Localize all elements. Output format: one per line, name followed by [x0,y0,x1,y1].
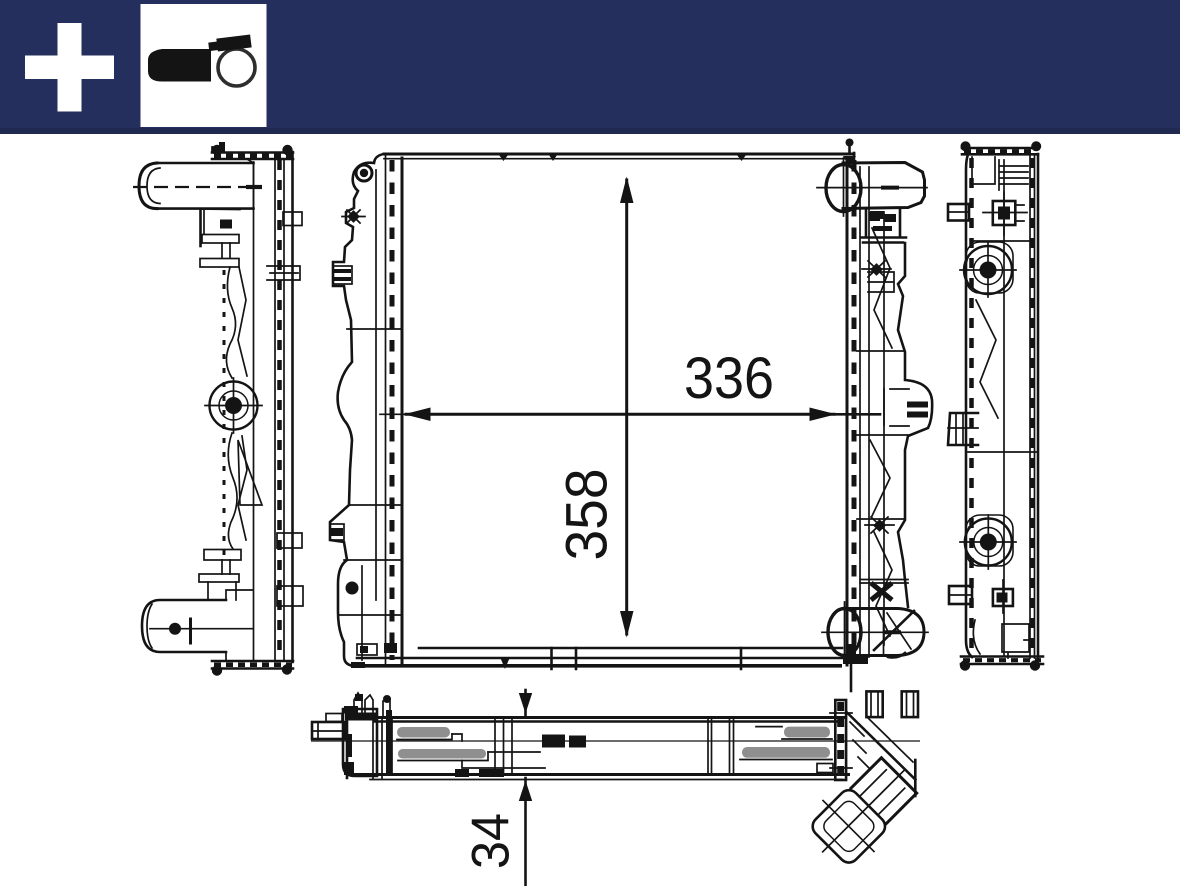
svg-text:358: 358 [555,469,620,561]
svg-text:336: 336 [684,346,774,411]
svg-text:34: 34 [462,813,521,869]
